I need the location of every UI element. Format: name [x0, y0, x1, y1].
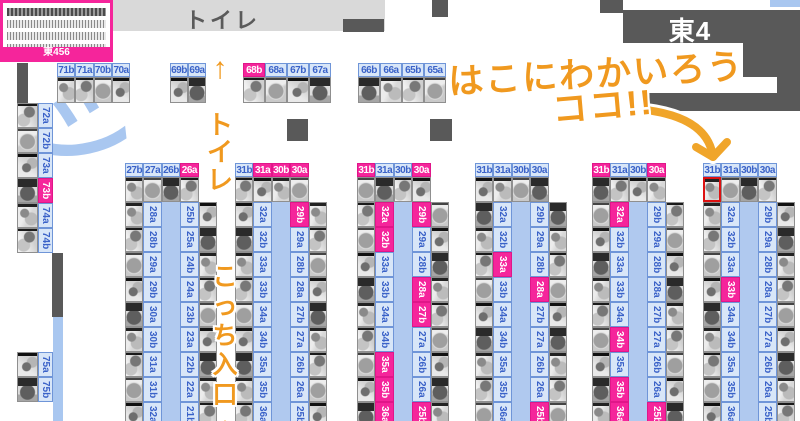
booth-label-28a[interactable]: 28a [290, 277, 308, 302]
circle-cut-66a[interactable] [380, 77, 402, 103]
booth-label-31a[interactable]: 31a [143, 352, 161, 377]
circle-cut-33a[interactable] [703, 252, 721, 277]
circle-cut-67a[interactable] [309, 77, 331, 103]
booth-label-30b[interactable]: 30b [629, 163, 647, 177]
shutter-strip [770, 0, 800, 7]
circle-cut-31a[interactable] [610, 177, 628, 202]
booth-label-24a[interactable]: 24a [180, 277, 198, 302]
circle-cut-28a[interactable] [309, 277, 327, 302]
circle-cut-73b[interactable] [17, 178, 38, 203]
booth-label-33a[interactable]: 33a [253, 252, 271, 277]
booth-label-75a[interactable]: 75a [38, 352, 53, 377]
booth-label-28b[interactable]: 28b [143, 227, 161, 252]
circle-cut-29b[interactable] [777, 202, 795, 227]
booth-label-29b[interactable]: 29b [412, 202, 430, 227]
circle-cut-26a[interactable] [549, 377, 567, 402]
booth-label-30b[interactable]: 30b [740, 163, 758, 177]
booth-label-66a[interactable]: 66a [380, 63, 402, 77]
circle-cut-29b[interactable] [125, 277, 143, 302]
circle-cut-29a[interactable] [125, 252, 143, 277]
circle-cut-34a[interactable] [592, 302, 610, 327]
circle-cut-25b[interactable] [777, 402, 795, 421]
booth-label-33a[interactable]: 33a [610, 252, 628, 277]
circle-cut-30a[interactable] [125, 302, 143, 327]
booth-label-70b[interactable]: 70b [94, 63, 112, 77]
booth-label-72b[interactable]: 72b [38, 128, 53, 153]
circle-cut-75a[interactable] [17, 352, 38, 377]
booth-label-25a[interactable]: 25a [180, 227, 198, 252]
circle-cut-28a[interactable] [549, 277, 567, 302]
booth-label-25b[interactable]: 25b [530, 402, 548, 421]
mini-map-row [7, 20, 106, 28]
booth-label-73a[interactable]: 73a [38, 153, 53, 178]
circle-cut-36a[interactable] [475, 402, 493, 421]
booth-label-23b[interactable]: 23b [180, 302, 198, 327]
booth-label-32a[interactable]: 32a [253, 202, 271, 227]
booth-label-74a[interactable]: 74a [38, 203, 53, 228]
booth-label-27a[interactable]: 27a [758, 327, 776, 352]
circle-cut-26b[interactable] [309, 352, 327, 377]
booth-label-34a[interactable]: 34a [610, 302, 628, 327]
circle-cut-32b[interactable] [592, 227, 610, 252]
circle-cut-31b[interactable] [475, 177, 493, 202]
circle-cut-27a[interactable] [777, 327, 795, 352]
booth-label-30a[interactable]: 30a [530, 163, 548, 177]
circle-cut-28b[interactable] [666, 252, 684, 277]
circle-cut-70a[interactable] [112, 77, 130, 103]
booth-label-30b[interactable]: 30b [512, 163, 530, 177]
circle-cut-35a[interactable] [592, 352, 610, 377]
circle-cut-75b[interactable] [17, 377, 38, 402]
circle-cut-32a[interactable] [235, 202, 253, 227]
booth-label-28a[interactable]: 28a [758, 277, 776, 302]
booth-label-67b[interactable]: 67b [287, 63, 309, 77]
circle-cut-27b[interactable] [549, 302, 567, 327]
booth-label-29b[interactable]: 29b [143, 277, 161, 302]
circle-cut-66b[interactable] [358, 77, 380, 103]
booth-label-31a[interactable]: 31a [375, 163, 393, 177]
circle-cut-30b[interactable] [125, 327, 143, 352]
circle-cut-34b[interactable] [592, 327, 610, 352]
booth-label-33a[interactable]: 33a [721, 252, 739, 277]
circle-cut-25b[interactable] [666, 402, 684, 421]
booth-label-27a[interactable]: 27a [412, 327, 430, 352]
circle-cut-35a[interactable] [475, 352, 493, 377]
circle-cut-32a[interactable] [125, 402, 143, 421]
circle-cut-27b[interactable] [431, 302, 449, 327]
circle-cut-36a[interactable] [357, 402, 375, 421]
hall-overview-label: 東456 [3, 47, 110, 59]
circle-cut-28b[interactable] [777, 252, 795, 277]
booth-label-33a[interactable]: 33a [493, 252, 511, 277]
circle-cut-32a[interactable] [475, 202, 493, 227]
circle-cut-26a[interactable] [309, 377, 327, 402]
circle-cut-29b[interactable] [431, 202, 449, 227]
booth-label-31a[interactable]: 31a [493, 163, 511, 177]
circle-cut-31a[interactable] [125, 352, 143, 377]
booth-label-34a[interactable]: 34a [375, 302, 393, 327]
booth-label-35b[interactable]: 35b [610, 377, 628, 402]
circle-cut-36a[interactable] [592, 402, 610, 421]
island-aisle [512, 202, 530, 421]
circle-cut-31a[interactable] [375, 177, 393, 202]
circle-cut-25b[interactable] [309, 402, 327, 421]
booth-label-73b[interactable]: 73b [38, 178, 53, 203]
circle-cut-31b[interactable] [357, 177, 375, 202]
circle-cut-34b[interactable] [357, 327, 375, 352]
circle-cut-32a[interactable] [357, 202, 375, 227]
circle-cut-30b[interactable] [740, 177, 758, 202]
booth-label-26b[interactable]: 26b [162, 163, 180, 177]
circle-cut-28a[interactable] [125, 202, 143, 227]
circle-cut-65a[interactable] [424, 77, 446, 103]
booth-label-29a[interactable]: 29a [290, 227, 308, 252]
circle-cut-30a[interactable] [530, 177, 548, 202]
circle-cut-31b-highlighted[interactable] [703, 177, 721, 202]
circle-cut-65b[interactable] [402, 77, 424, 103]
circle-cut-27a[interactable] [666, 327, 684, 352]
booth-label-75b[interactable]: 75b [38, 377, 53, 402]
booth-label-31a[interactable]: 31a [721, 163, 739, 177]
booth-label-32b[interactable]: 32b [721, 227, 739, 252]
booth-label-32a[interactable]: 32a [721, 202, 739, 227]
circle-cut-25b[interactable] [549, 402, 567, 421]
circle-cut-32a[interactable] [703, 202, 721, 227]
booth-label-34b[interactable]: 34b [375, 327, 393, 352]
booth-label-72a[interactable]: 72a [38, 103, 53, 128]
wall-segment [52, 253, 63, 317]
circle-cut-32b[interactable] [475, 227, 493, 252]
booth-label-30a[interactable]: 30a [758, 163, 776, 177]
circle-cut-32a[interactable] [592, 202, 610, 227]
booth-label-35b[interactable]: 35b [721, 377, 739, 402]
booth-label-27a[interactable]: 27a [530, 327, 548, 352]
circle-cut-31a[interactable] [493, 177, 511, 202]
circle-cut-74b[interactable] [17, 228, 38, 253]
circle-cut-26a[interactable] [431, 377, 449, 402]
booth-label-25b[interactable]: 25b [758, 402, 776, 421]
circle-cut-25b[interactable] [199, 202, 217, 227]
booth-label-33b[interactable]: 33b [493, 277, 511, 302]
booth-label-27a[interactable]: 27a [290, 327, 308, 352]
circle-cut-35a[interactable] [703, 352, 721, 377]
booth-label-28b[interactable]: 28b [412, 252, 430, 277]
booth-label-26b[interactable]: 26b [290, 352, 308, 377]
booth-label-29a[interactable]: 29a [758, 227, 776, 252]
booth-label-30a[interactable]: 30a [143, 302, 161, 327]
booth-label-36a[interactable]: 36a [610, 402, 628, 421]
circle-cut-30a[interactable] [758, 177, 776, 202]
circle-cut-29a[interactable] [777, 227, 795, 252]
circle-cut-33a[interactable] [475, 252, 493, 277]
booth-label-28b[interactable]: 28b [530, 252, 548, 277]
booth-label-68a[interactable]: 68a [265, 63, 287, 77]
booth-label-27b[interactable]: 27b [758, 302, 776, 327]
booth-label-33b[interactable]: 33b [253, 277, 271, 302]
circle-cut-30a[interactable] [290, 177, 308, 202]
booth-label-27b[interactable]: 27b [412, 302, 430, 327]
circle-cut-27a[interactable] [549, 327, 567, 352]
booth-label-25b[interactable]: 25b [647, 402, 665, 421]
booth-label-34b[interactable]: 34b [253, 327, 271, 352]
circle-cut-73a[interactable] [17, 153, 38, 178]
booth-label-32b[interactable]: 32b [493, 227, 511, 252]
booth-label-31a[interactable]: 31a [253, 163, 271, 177]
booth-label-35a[interactable]: 35a [610, 352, 628, 377]
booth-label-34a[interactable]: 34a [493, 302, 511, 327]
booth-label-35b[interactable]: 35b [493, 377, 511, 402]
circle-cut-28a[interactable] [666, 277, 684, 302]
booth-label-67a[interactable]: 67a [309, 63, 331, 77]
booth-label-66b[interactable]: 66b [358, 63, 380, 77]
circle-cut-35b[interactable] [703, 377, 721, 402]
circle-cut-26a[interactable] [666, 377, 684, 402]
circle-cut-28a[interactable] [777, 277, 795, 302]
circle-cut-30b[interactable] [512, 177, 530, 202]
booth-label-33b[interactable]: 33b [721, 277, 739, 302]
circle-cut-70b[interactable] [94, 77, 112, 103]
booth-label-26a[interactable]: 26a [290, 377, 308, 402]
booth-label-71b[interactable]: 71b [57, 63, 75, 77]
circle-cut-29b[interactable] [549, 202, 567, 227]
circle-cut-31b[interactable] [125, 377, 143, 402]
circle-cut-29a[interactable] [309, 227, 327, 252]
booth-label-35b[interactable]: 35b [375, 377, 393, 402]
circle-cut-27b[interactable] [666, 302, 684, 327]
booth-label-26a[interactable]: 26a [530, 377, 548, 402]
booth-label-32a[interactable]: 32a [375, 202, 393, 227]
circle-cut-28a[interactable] [431, 277, 449, 302]
down-arrow-icon: ↓ [204, 410, 246, 421]
circle-cut-68b[interactable] [243, 77, 265, 103]
booth-label-34b[interactable]: 34b [493, 327, 511, 352]
booth-label-34b[interactable]: 34b [610, 327, 628, 352]
booth-label-22b[interactable]: 22b [180, 352, 198, 377]
booth-label-27b[interactable]: 27b [530, 302, 548, 327]
booth-label-36a[interactable]: 36a [253, 402, 271, 421]
booth-label-32a[interactable]: 32a [493, 202, 511, 227]
circle-cut-34b[interactable] [703, 327, 721, 352]
circle-cut-32b[interactable] [357, 227, 375, 252]
booth-label-65a[interactable]: 65a [424, 63, 446, 77]
booth-label-35a[interactable]: 35a [375, 352, 393, 377]
circle-cut-28b[interactable] [309, 252, 327, 277]
circle-cut-28b[interactable] [549, 252, 567, 277]
circle-cut-68a[interactable] [265, 77, 287, 103]
booth-label-65b[interactable]: 65b [402, 63, 424, 77]
booth-label-30b[interactable]: 30b [143, 327, 161, 352]
circle-cut-35b[interactable] [357, 377, 375, 402]
booth-label-33b[interactable]: 33b [375, 277, 393, 302]
booth-label-31b[interactable]: 31b [703, 163, 721, 177]
booth-label-34b[interactable]: 34b [721, 327, 739, 352]
circle-cut-27a[interactable] [431, 327, 449, 352]
booth-label-32a[interactable]: 32a [610, 202, 628, 227]
circle-cut-28b[interactable] [125, 227, 143, 252]
booth-label-23a[interactable]: 23a [180, 327, 198, 352]
circle-cut-30b[interactable] [272, 177, 290, 202]
booth-label-34a[interactable]: 34a [253, 302, 271, 327]
booth-label-68b[interactable]: 68b [243, 63, 265, 77]
booth-label-21b[interactable]: 21b [180, 402, 198, 421]
circle-cut-27b[interactable] [125, 177, 143, 202]
annotation-toilet-text: ト イ レ [207, 110, 233, 195]
booth-label-31b[interactable]: 31b [592, 163, 610, 177]
booth-label-28a[interactable]: 28a [647, 277, 665, 302]
booth-label-27b[interactable]: 27b [647, 302, 665, 327]
circle-cut-29a[interactable] [549, 227, 567, 252]
booth-label-28b[interactable]: 28b [647, 252, 665, 277]
booth-label-25b[interactable]: 25b [290, 402, 308, 421]
booth-label-71a[interactable]: 71a [75, 63, 93, 77]
pillar [287, 119, 308, 141]
island-aisle [162, 202, 180, 421]
circle-cut-35b[interactable] [592, 377, 610, 402]
circle-cut-71a[interactable] [75, 77, 93, 103]
booth-label-25b[interactable]: 25b [412, 402, 430, 421]
booth-label-74b[interactable]: 74b [38, 228, 53, 253]
circle-cut-34b[interactable] [475, 327, 493, 352]
booth-label-26a[interactable]: 26a [412, 377, 430, 402]
booth-label-26a[interactable]: 26a [758, 377, 776, 402]
booth-label-26b[interactable]: 26b [647, 352, 665, 377]
booth-label-29a[interactable]: 29a [530, 227, 548, 252]
booth-label-26b[interactable]: 26b [758, 352, 776, 377]
circle-cut-33b[interactable] [357, 277, 375, 302]
booth-label-27a[interactable]: 27a [647, 327, 665, 352]
circle-cut-33b[interactable] [703, 277, 721, 302]
circle-cut-26a[interactable] [777, 377, 795, 402]
booth-label-35a[interactable]: 35a [493, 352, 511, 377]
circle-cut-35b[interactable] [475, 377, 493, 402]
booth-label-31b[interactable]: 31b [475, 163, 493, 177]
booth-label-30b[interactable]: 30b [272, 163, 290, 177]
booth-label-26a[interactable]: 26a [647, 377, 665, 402]
hall-overview-box[interactable]: 東456 [0, 0, 113, 62]
booth-label-33b[interactable]: 33b [610, 277, 628, 302]
circle-cut-74a[interactable] [17, 203, 38, 228]
circle-cut-36a[interactable] [703, 402, 721, 421]
circle-cut-72b[interactable] [17, 128, 38, 153]
circle-cut-72a[interactable] [17, 103, 38, 128]
floor-map-canvas: トイレ 東4 東456 シ ↑ ト イ レ はこにわかいろう ココ!! こ っ … [0, 0, 800, 421]
circle-cut-29b[interactable] [666, 202, 684, 227]
circle-cut-29a[interactable] [431, 227, 449, 252]
booth-label-36a[interactable]: 36a [375, 402, 393, 421]
booth-label-27a[interactable]: 27a [143, 163, 161, 177]
booth-label-31b[interactable]: 31b [357, 163, 375, 177]
circle-cut-32b[interactable] [703, 227, 721, 252]
circle-cut-34a[interactable] [357, 302, 375, 327]
booth-label-70a[interactable]: 70a [112, 63, 130, 77]
booth-label-29a[interactable]: 29a [412, 227, 430, 252]
booth-label-27b[interactable]: 27b [290, 302, 308, 327]
booth-label-31b[interactable]: 31b [143, 377, 161, 402]
booth-label-28b[interactable]: 28b [758, 252, 776, 277]
circle-cut-26b[interactable] [162, 177, 180, 202]
circle-cut-30b[interactable] [394, 177, 412, 202]
booth-label-32b[interactable]: 32b [253, 227, 271, 252]
circle-cut-33b[interactable] [592, 277, 610, 302]
circle-cut-67b[interactable] [287, 77, 309, 103]
booth-label-35b[interactable]: 35b [253, 377, 271, 402]
booth-label-28a[interactable]: 28a [530, 277, 548, 302]
booth-label-22a[interactable]: 22a [180, 377, 198, 402]
island-aisle [272, 202, 290, 421]
circle-cut-31a[interactable] [253, 177, 271, 202]
annotation-toilet-direction: ↑ ト イ レ [196, 26, 244, 194]
circle-cut-69b[interactable] [170, 77, 188, 103]
circle-cut-34a[interactable] [703, 302, 721, 327]
booth-label-29b[interactable]: 29b [290, 202, 308, 227]
booth-label-36a[interactable]: 36a [721, 402, 739, 421]
circle-cut-27a[interactable] [309, 327, 327, 352]
circle-cut-25b[interactable] [431, 402, 449, 421]
circle-cut-35a[interactable] [357, 352, 375, 377]
booth-label-32b[interactable]: 32b [610, 227, 628, 252]
booth-label-29b[interactable]: 29b [647, 202, 665, 227]
circle-cut-27a[interactable] [143, 177, 161, 202]
circle-cut-26b[interactable] [549, 352, 567, 377]
circle-cut-33a[interactable] [357, 252, 375, 277]
circle-cut-29a[interactable] [666, 227, 684, 252]
booth-label-35a[interactable]: 35a [253, 352, 271, 377]
booth-label-29a[interactable]: 29a [647, 227, 665, 252]
booth-label-30a[interactable]: 30a [647, 163, 665, 177]
booth-label-28b[interactable]: 28b [290, 252, 308, 277]
booth-label-34a[interactable]: 34a [721, 302, 739, 327]
circle-cut-30a[interactable] [412, 177, 430, 202]
booth-label-32b[interactable]: 32b [375, 227, 393, 252]
booth-label-28a[interactable]: 28a [412, 277, 430, 302]
circle-cut-27b[interactable] [309, 302, 327, 327]
booth-label-36a[interactable]: 36a [493, 402, 511, 421]
booth-label-24b[interactable]: 24b [180, 252, 198, 277]
circle-cut-29b[interactable] [309, 202, 327, 227]
booth-label-27b[interactable]: 27b [125, 163, 143, 177]
hall-name-label: 東4 [648, 11, 732, 42]
circle-cut-34a[interactable] [475, 302, 493, 327]
booth-label-29a[interactable]: 29a [143, 252, 161, 277]
circle-cut-28b[interactable] [431, 252, 449, 277]
booth-label-30b[interactable]: 30b [394, 163, 412, 177]
circle-cut-26b[interactable] [777, 352, 795, 377]
booth-label-33a[interactable]: 33a [375, 252, 393, 277]
circle-cut-33b[interactable] [475, 277, 493, 302]
booth-label-69b[interactable]: 69b [170, 63, 188, 77]
booth-label-28a[interactable]: 28a [143, 202, 161, 227]
booth-label-29b[interactable]: 29b [530, 202, 548, 227]
booth-label-26b[interactable]: 26b [530, 352, 548, 377]
booth-label-32a[interactable]: 32a [143, 402, 161, 421]
circle-cut-27b[interactable] [777, 302, 795, 327]
booth-label-26b[interactable]: 26b [412, 352, 430, 377]
circle-cut-31b[interactable] [592, 177, 610, 202]
booth-label-30a[interactable]: 30a [412, 163, 430, 177]
booth-label-31a[interactable]: 31a [610, 163, 628, 177]
circle-cut-33a[interactable] [592, 252, 610, 277]
circle-cut-30b[interactable] [629, 177, 647, 202]
booth-label-25b[interactable]: 25b [180, 202, 198, 227]
booth-label-30a[interactable]: 30a [290, 163, 308, 177]
circle-cut-26b[interactable] [666, 352, 684, 377]
booth-label-29b[interactable]: 29b [758, 202, 776, 227]
booth-label-35a[interactable]: 35a [721, 352, 739, 377]
circle-cut-31a[interactable] [721, 177, 739, 202]
circle-cut-71b[interactable] [57, 77, 75, 103]
circle-cut-30a[interactable] [647, 177, 665, 202]
circle-cut-26b[interactable] [431, 352, 449, 377]
